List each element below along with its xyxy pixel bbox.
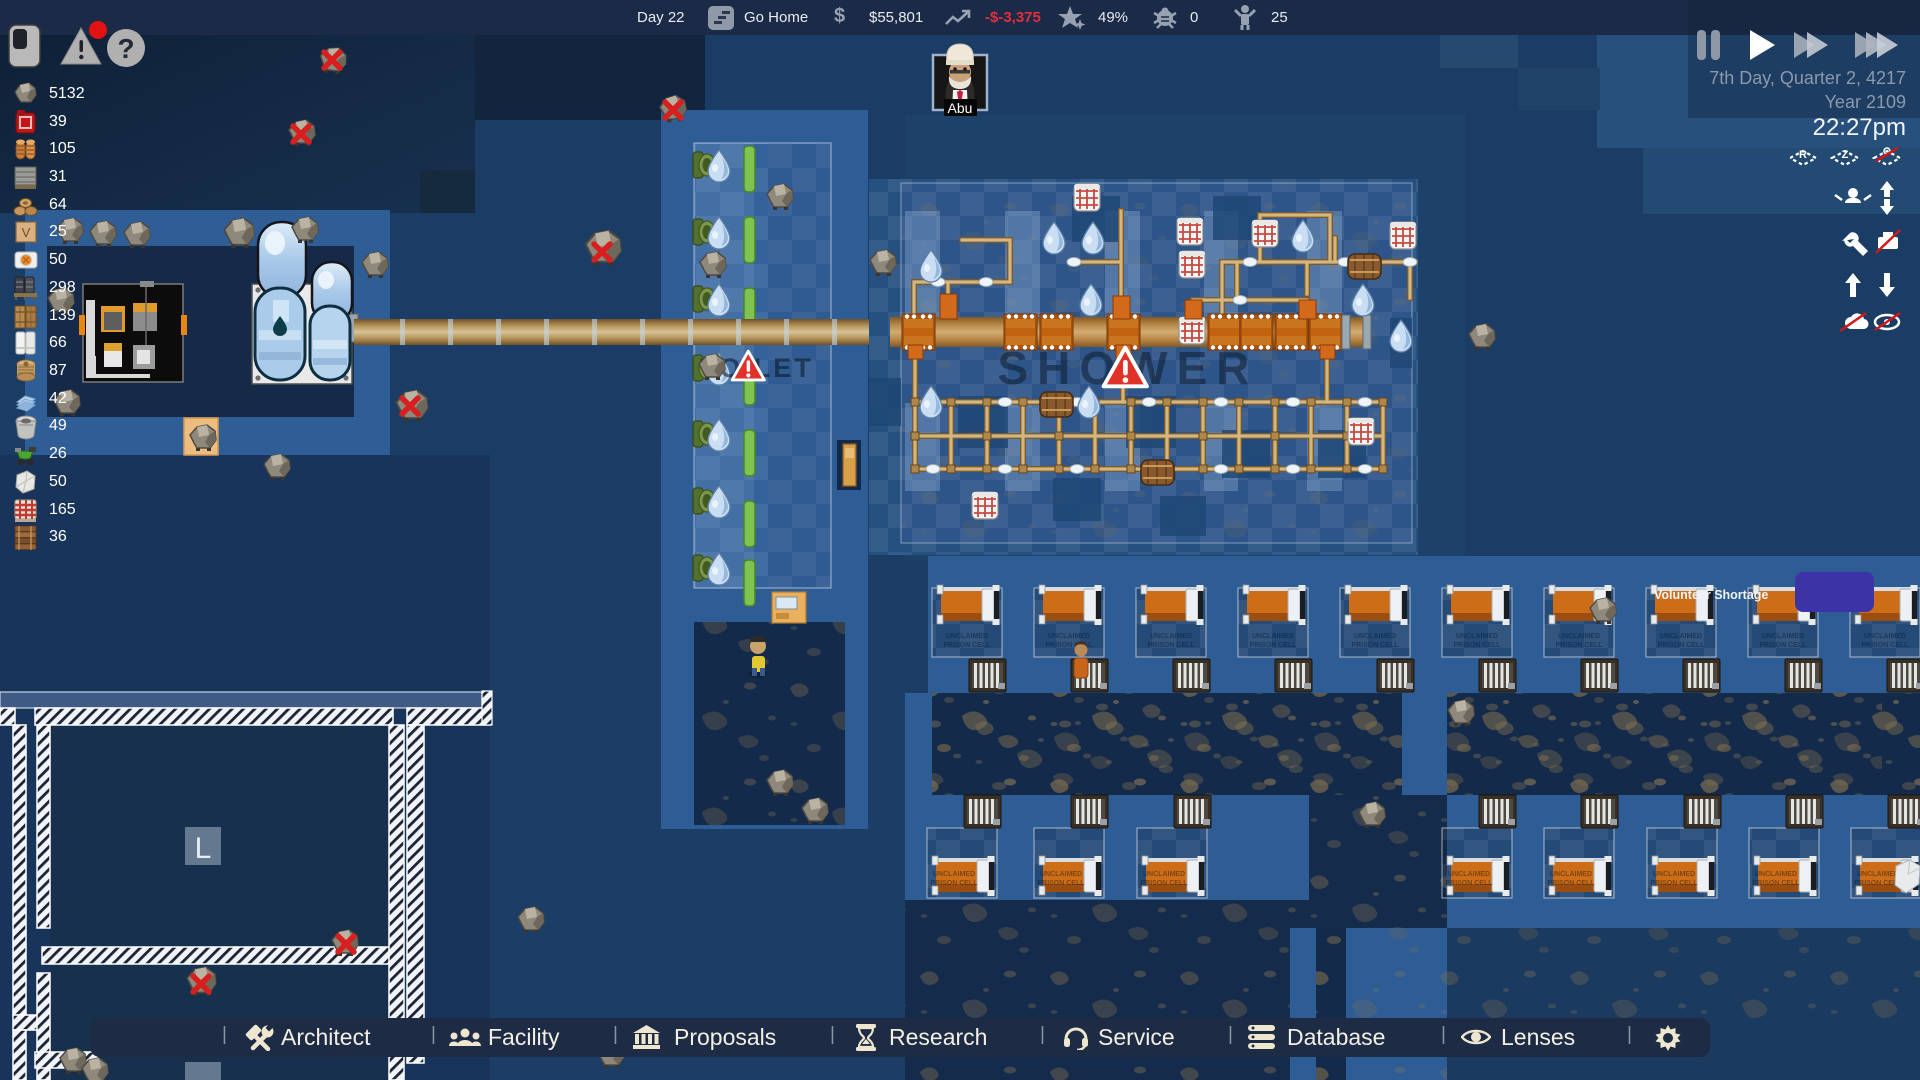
svg-text:V: V: [22, 225, 31, 240]
svg-text:R: R: [1799, 149, 1807, 161]
svg-text:UNCLAIMED: UNCLAIMED: [933, 871, 975, 878]
svg-text:PRISON CELL: PRISON CELL: [943, 642, 991, 649]
svg-text:PRISON CELL: PRISON CELL: [1249, 642, 1297, 649]
svg-text:PRISON CELL: PRISON CELL: [1547, 880, 1595, 887]
svg-text:PRISON CELL: PRISON CELL: [930, 880, 978, 887]
svg-text:?: ?: [117, 33, 134, 64]
svg-text:UNCLAIMED: UNCLAIMED: [1864, 633, 1906, 640]
svg-text:UNCLAIMED: UNCLAIMED: [1456, 633, 1498, 640]
svg-text:L: L: [195, 832, 212, 865]
svg-text:PRISON CELL: PRISON CELL: [1453, 642, 1501, 649]
svg-text:PRISON CELL: PRISON CELL: [1147, 642, 1195, 649]
svg-text:UNCLAIMED: UNCLAIMED: [1660, 633, 1702, 640]
svg-text:UNCLAIMED: UNCLAIMED: [1143, 871, 1185, 878]
svg-text:Abu: Abu: [948, 100, 973, 116]
svg-text:Volunteer Shortage: Volunteer Shortage: [1654, 588, 1768, 602]
svg-text:UNCLAIMED: UNCLAIMED: [1755, 871, 1797, 878]
svg-text:PRISON CELL: PRISON CELL: [1445, 880, 1493, 887]
svg-text:UNCLAIMED: UNCLAIMED: [1653, 871, 1695, 878]
svg-text:PRISON CELL: PRISON CELL: [1752, 880, 1800, 887]
svg-text:UNCLAIMED: UNCLAIMED: [1354, 633, 1396, 640]
svg-text:UNCLAIMED: UNCLAIMED: [1150, 633, 1192, 640]
svg-text:UNCLAIMED: UNCLAIMED: [1048, 633, 1090, 640]
svg-text:PRISON CELL: PRISON CELL: [1140, 880, 1188, 887]
svg-text:UNCLAIMED: UNCLAIMED: [946, 633, 988, 640]
svg-text:PRISON CELL: PRISON CELL: [1650, 880, 1698, 887]
svg-text:UNCLAIMED: UNCLAIMED: [1448, 871, 1490, 878]
svg-text:PRISON CELL: PRISON CELL: [1657, 642, 1705, 649]
svg-text:PRISON CELL: PRISON CELL: [1351, 642, 1399, 649]
svg-text:UNCLAIMED: UNCLAIMED: [1550, 871, 1592, 878]
svg-text:PRISON CELL: PRISON CELL: [1037, 880, 1085, 887]
svg-text:UNCLAIMED: UNCLAIMED: [1762, 633, 1804, 640]
svg-text:PRISON CELL: PRISON CELL: [1861, 642, 1909, 649]
svg-text:PRISON CELL: PRISON CELL: [1555, 642, 1603, 649]
svg-text:UNCLAIMED: UNCLAIMED: [1857, 871, 1899, 878]
svg-text:UNCLAIMED: UNCLAIMED: [1040, 871, 1082, 878]
svg-text:UNCLAIMED: UNCLAIMED: [1252, 633, 1294, 640]
svg-text:PRISON CELL: PRISON CELL: [1759, 642, 1807, 649]
svg-text:Z: Z: [1842, 149, 1849, 161]
svg-text:UNCLAIMED: UNCLAIMED: [1558, 633, 1600, 640]
